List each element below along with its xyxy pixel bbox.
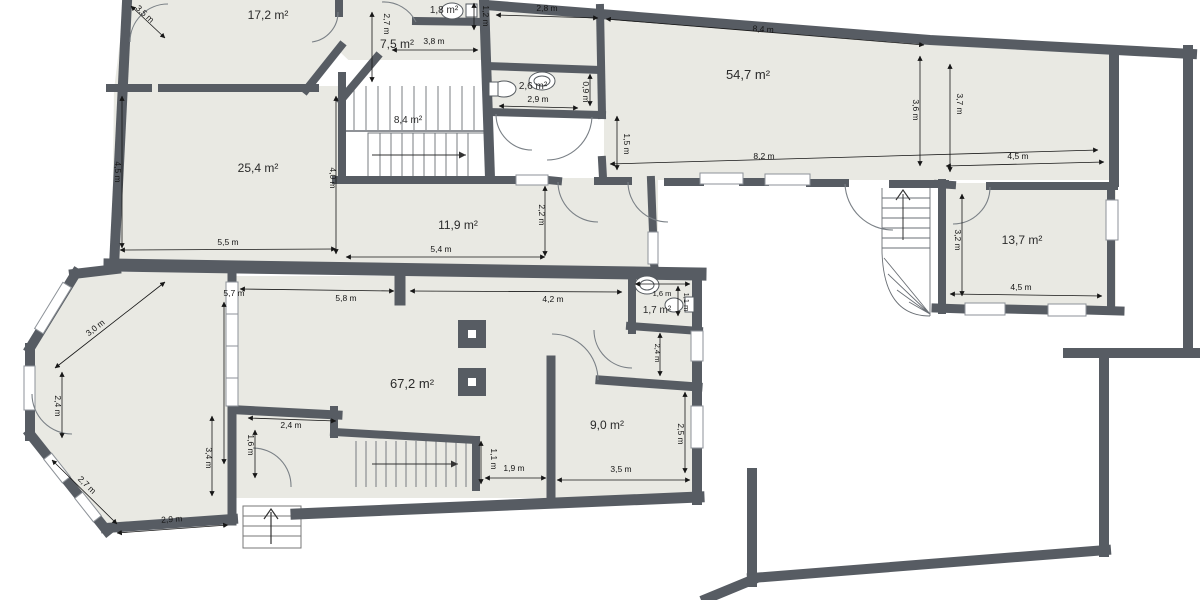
dim-label: 1,6 m <box>653 289 672 298</box>
column <box>458 320 486 348</box>
dim-label: 1,9 m <box>503 463 524 473</box>
room-label-1-7: 1,7 m² <box>643 305 672 316</box>
room-label-67-2: 67,2 m² <box>390 376 435 391</box>
window <box>765 174 810 185</box>
dim-label: 2,2 m <box>537 204 547 225</box>
dim-label: 2,5 m <box>676 423 686 444</box>
dim-label: 4,2 m <box>542 294 563 304</box>
window <box>1048 304 1086 316</box>
room-label-1-8: 1,8 m² <box>430 5 459 16</box>
room-label-7-5: 7,5 m² <box>380 37 414 51</box>
dim-label: 8,2 m <box>753 151 774 161</box>
dim-label: 3,5 m <box>610 464 631 474</box>
room-label-2-6: 2,6 m² <box>519 81 548 92</box>
dim-label: 3,6 m <box>911 99 921 120</box>
dim-label: 5,4 m <box>430 244 451 254</box>
dim-label: 5,8 m <box>335 293 356 303</box>
room-label-11-9: 11,9 m² <box>438 218 478 232</box>
window <box>516 175 548 185</box>
dim-label: 1,1 m <box>682 293 691 312</box>
dim-label: 3,4 m <box>204 447 214 468</box>
glazed-partition <box>226 282 238 406</box>
dim-label: 2,9 m <box>161 513 183 524</box>
window <box>691 331 703 361</box>
room-label-13-7: 13,7 m² <box>1002 233 1043 247</box>
dim-label: 3,8 m <box>423 36 444 46</box>
door-arc <box>496 114 532 150</box>
room-label-54-7: 54,7 m² <box>726 67 771 82</box>
floor-plan-canvas: 3,5 m 2,7 m 3,8 m 1,2 m 2,8 m 8,4 m 2,9 … <box>0 0 1200 600</box>
room-11-9-fill <box>338 178 658 268</box>
dim-label: 4,5 m <box>113 161 123 182</box>
dim-label: 4,5 m <box>1010 282 1031 292</box>
staircase-curved <box>882 188 930 316</box>
dim-label: 8,4 m <box>752 23 774 34</box>
window <box>1106 200 1118 240</box>
dim-label: 1,6 m <box>246 434 256 455</box>
dim-label: 2,4 m <box>53 395 63 416</box>
dim-label: 4,5 m <box>1007 151 1028 161</box>
dim-label: 2,4 m <box>280 420 301 430</box>
room-label-9-0: 9,0 m² <box>590 418 624 432</box>
dim-label: 2,7 m <box>382 13 392 34</box>
room-label-8-4: 8,4 m² <box>394 115 423 126</box>
dim-label: 5,5 m <box>217 237 238 247</box>
dim-label: 2,9 m <box>527 94 548 104</box>
window <box>965 303 1005 315</box>
dim-label: 0,9 m <box>581 81 591 102</box>
window <box>691 406 703 448</box>
dim-label: 3,7 m <box>955 93 965 114</box>
window <box>648 232 658 264</box>
dim-label: 2,4 m <box>653 344 662 363</box>
room-25-4-fill <box>112 86 342 262</box>
dim-label: 1,1 m <box>489 448 499 469</box>
room-label-17-2: 17,2 m² <box>248 8 289 22</box>
toilet-icon <box>489 81 516 97</box>
door-arc <box>845 184 893 230</box>
column <box>458 368 486 396</box>
dim-label: 4,0 m <box>328 167 338 188</box>
floor-plan-page: 3,5 m 2,7 m 3,8 m 1,2 m 2,8 m 8,4 m 2,9 … <box>0 0 1200 600</box>
window <box>700 173 743 184</box>
dim-label: 2,8 m <box>536 3 557 13</box>
door-arc <box>547 117 592 160</box>
dim-label: 5,7 m <box>223 288 244 298</box>
dim-label: 3,2 m <box>953 229 963 250</box>
dim-label: 1,5 m <box>622 133 632 154</box>
dim-label: 1,2 m <box>481 5 491 26</box>
room-label-25-4: 25,4 m² <box>238 161 279 175</box>
